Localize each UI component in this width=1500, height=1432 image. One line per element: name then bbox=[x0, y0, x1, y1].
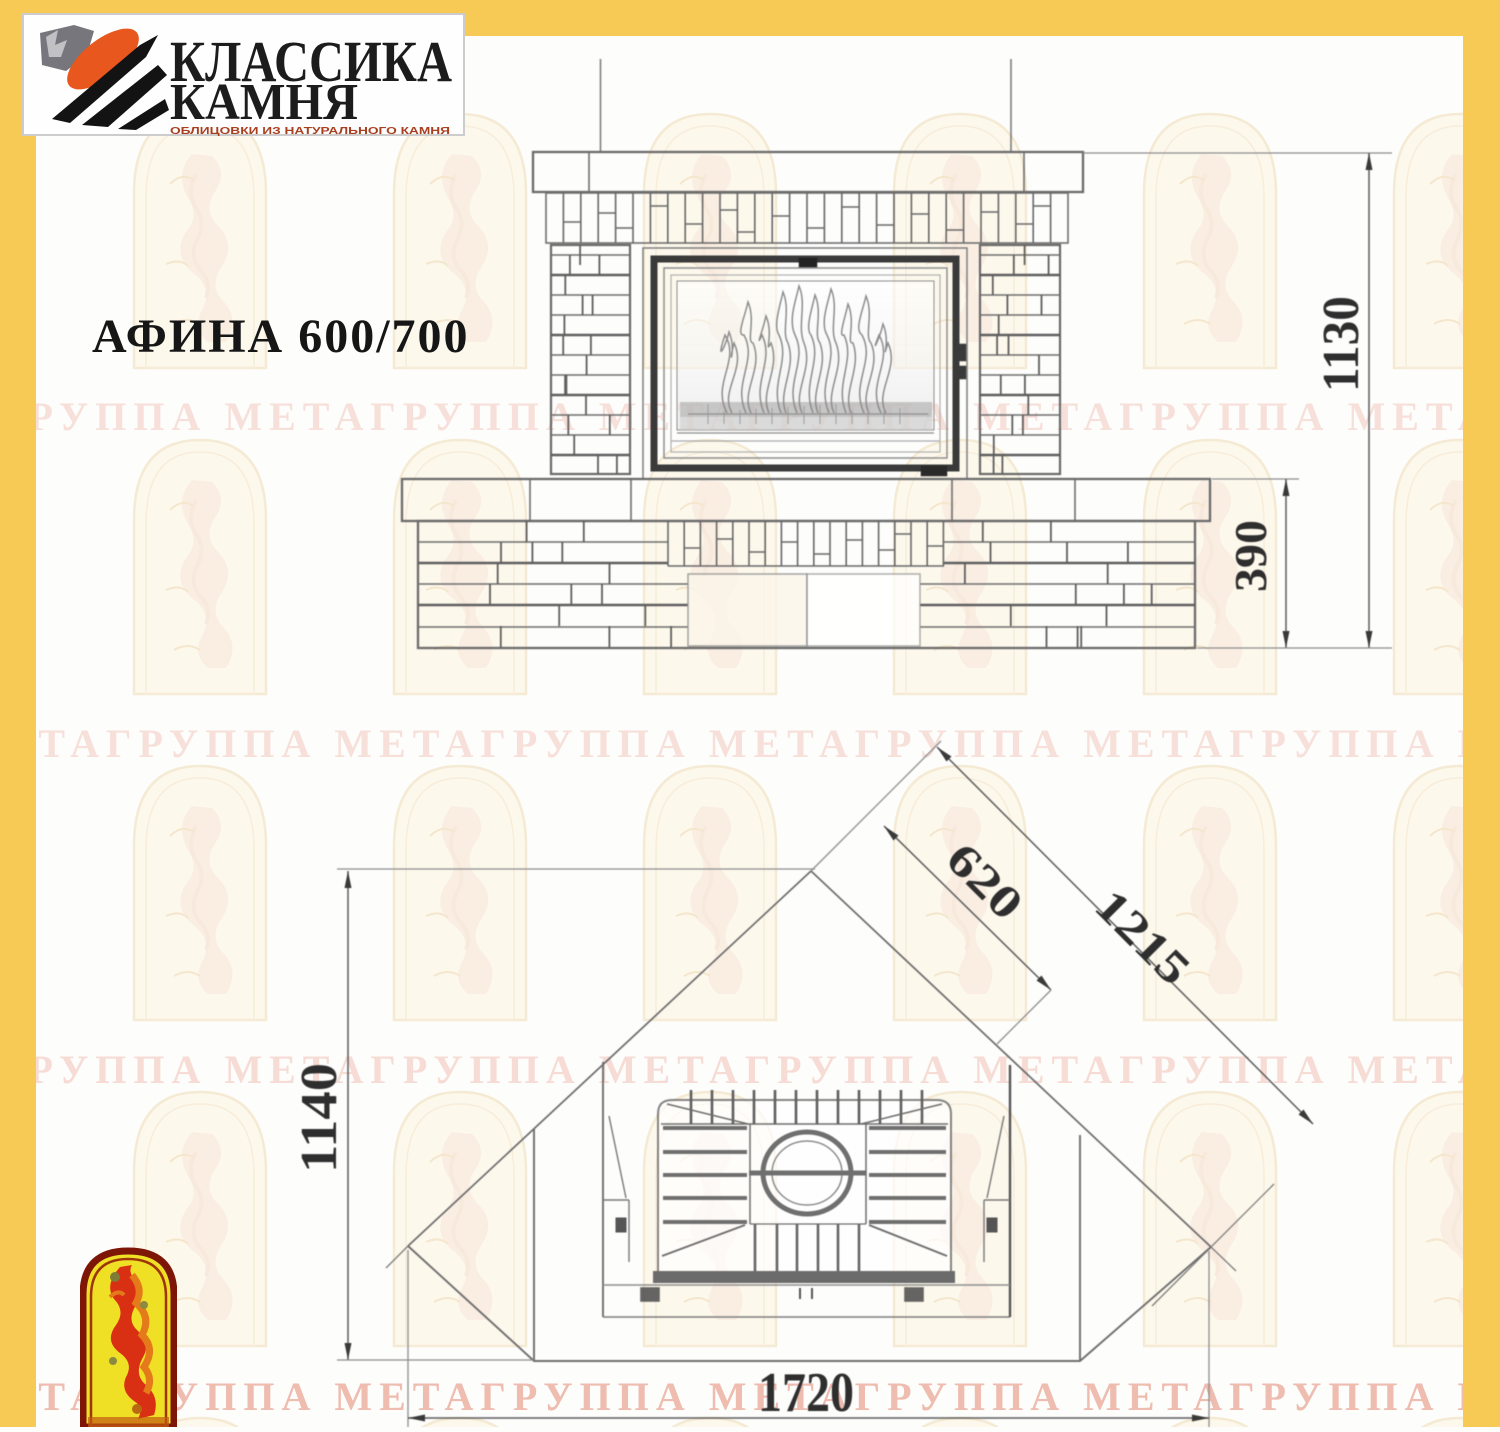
svg-text:390: 390 bbox=[1225, 520, 1276, 592]
svg-text:КАМНЯ: КАМНЯ bbox=[170, 74, 358, 131]
svg-text:1140: 1140 bbox=[291, 1063, 348, 1173]
svg-text:620: 620 bbox=[937, 833, 1034, 930]
svg-text:1130: 1130 bbox=[1313, 296, 1370, 392]
svg-text:1720: 1720 bbox=[758, 1362, 854, 1424]
svg-text:1215: 1215 bbox=[1085, 879, 1200, 994]
svg-text:ОБЛИЦОВКИ ИЗ НАТУРАЛЬНОГО КАМН: ОБЛИЦОВКИ ИЗ НАТУРАЛЬНОГО КАМНЯ bbox=[170, 125, 450, 137]
